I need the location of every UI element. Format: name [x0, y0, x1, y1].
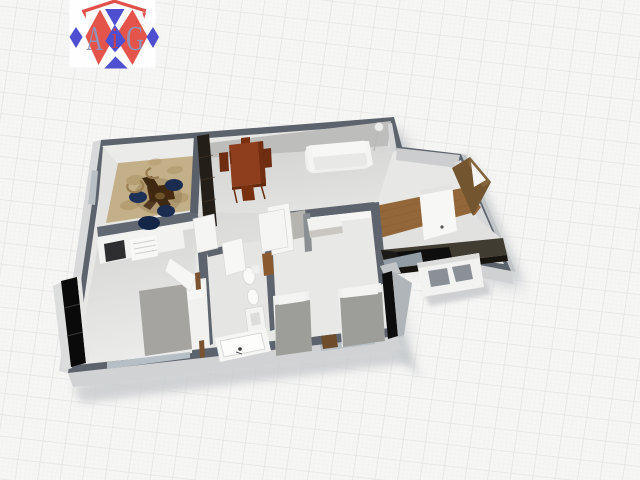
svg-text:A: A [86, 20, 103, 58]
svg-text:G: G [126, 19, 144, 58]
svg-text:i: i [111, 21, 118, 55]
